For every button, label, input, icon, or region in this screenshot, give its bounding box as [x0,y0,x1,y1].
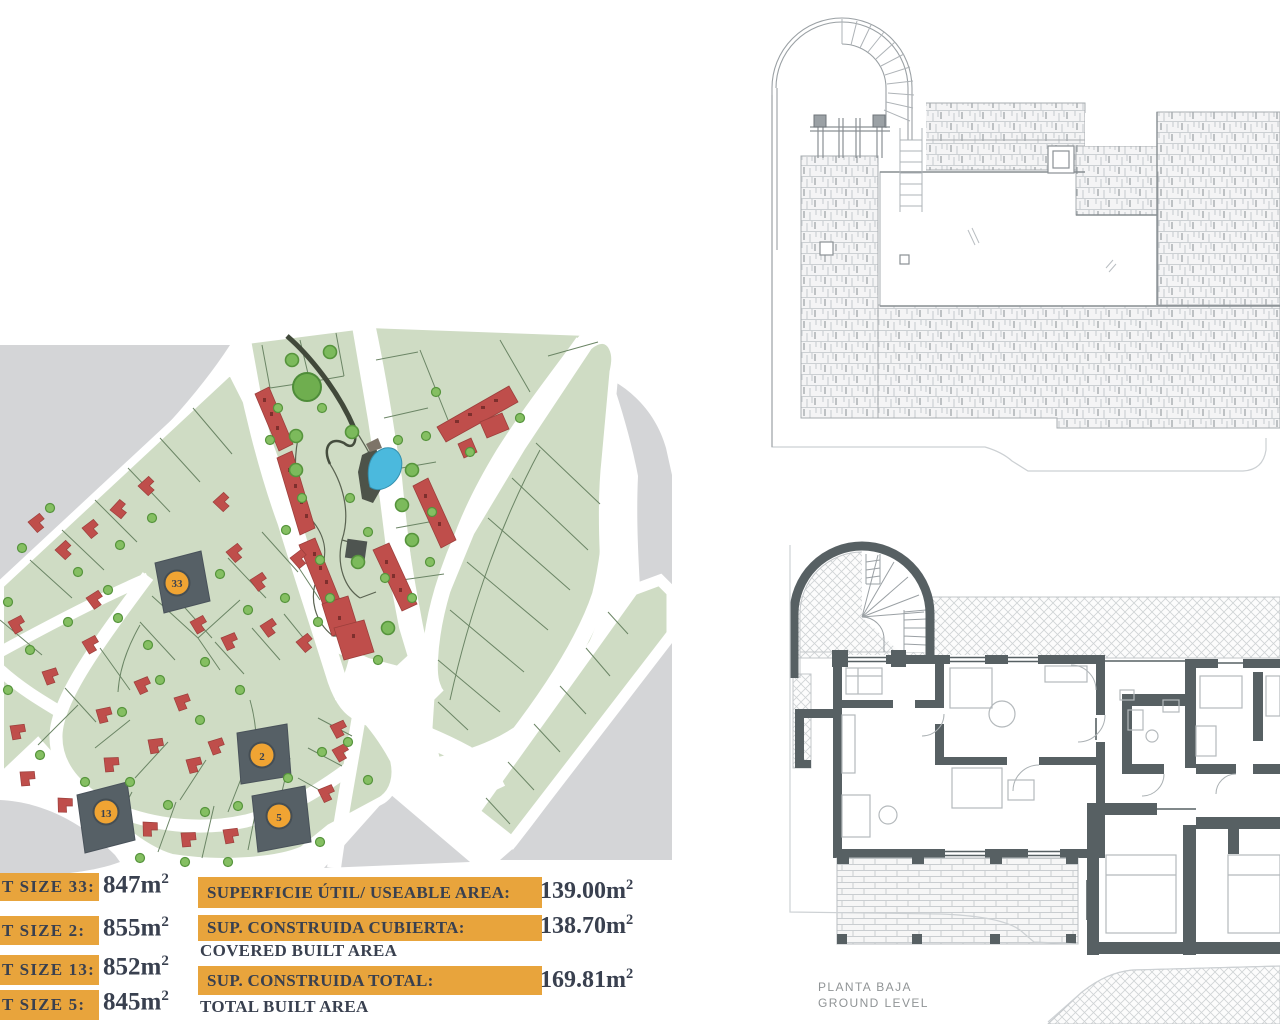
svg-text:2: 2 [259,751,265,763]
svg-text:5: 5 [276,812,282,824]
svg-text:33: 33 [172,578,184,590]
svg-text:13: 13 [101,808,113,820]
